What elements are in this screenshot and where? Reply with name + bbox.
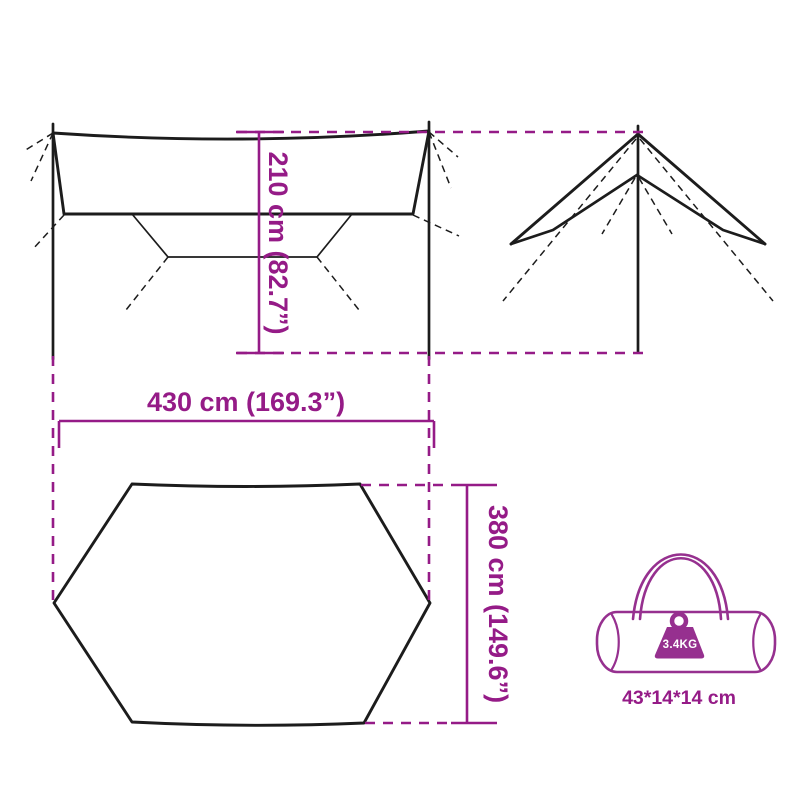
guy-lines-front bbox=[24, 132, 459, 310]
guy-line bbox=[33, 215, 64, 249]
guy-line bbox=[24, 133, 53, 151]
carry-bag: 3.4KG 43*14*14 cm bbox=[597, 555, 775, 710]
weight-icon: 3.4KG bbox=[655, 614, 704, 659]
tarp-hexagon-outline bbox=[54, 484, 430, 725]
width-dimension-label: 430 cm (169.3”) bbox=[147, 387, 345, 417]
tarp-wing-right bbox=[637, 175, 765, 244]
dimension-width: 430 cm (169.3”) bbox=[59, 387, 434, 448]
product-dimension-diagram: 210 cm (82.7”) 430 cm (169.3”) 380 cm (1… bbox=[0, 0, 800, 800]
weight-handle-ring bbox=[672, 614, 686, 628]
dimension-height: 210 cm (82.7”) bbox=[236, 132, 293, 353]
guy-line bbox=[413, 215, 459, 236]
guy-line bbox=[126, 257, 168, 310]
guy-line bbox=[429, 132, 451, 188]
tarp-wing-left bbox=[511, 175, 637, 244]
bag-size-label: 43*14*14 cm bbox=[622, 687, 736, 709]
top-view bbox=[54, 484, 430, 725]
tarp-rear-edge bbox=[132, 214, 352, 257]
tarp-front-outline bbox=[53, 131, 429, 214]
guy-line bbox=[317, 257, 359, 310]
height-dimension-label: 210 cm (82.7”) bbox=[263, 151, 293, 334]
bag-end-seam-left bbox=[612, 615, 619, 669]
bag-weight-label: 3.4KG bbox=[663, 639, 698, 651]
side-view bbox=[503, 126, 773, 352]
front-view bbox=[24, 122, 459, 359]
projection-lines bbox=[53, 132, 647, 723]
depth-dimension-label: 380 cm (149.6”) bbox=[483, 505, 513, 703]
bag-end-seam-right bbox=[753, 615, 760, 669]
dimension-depth: 380 cm (149.6”) bbox=[451, 485, 513, 723]
